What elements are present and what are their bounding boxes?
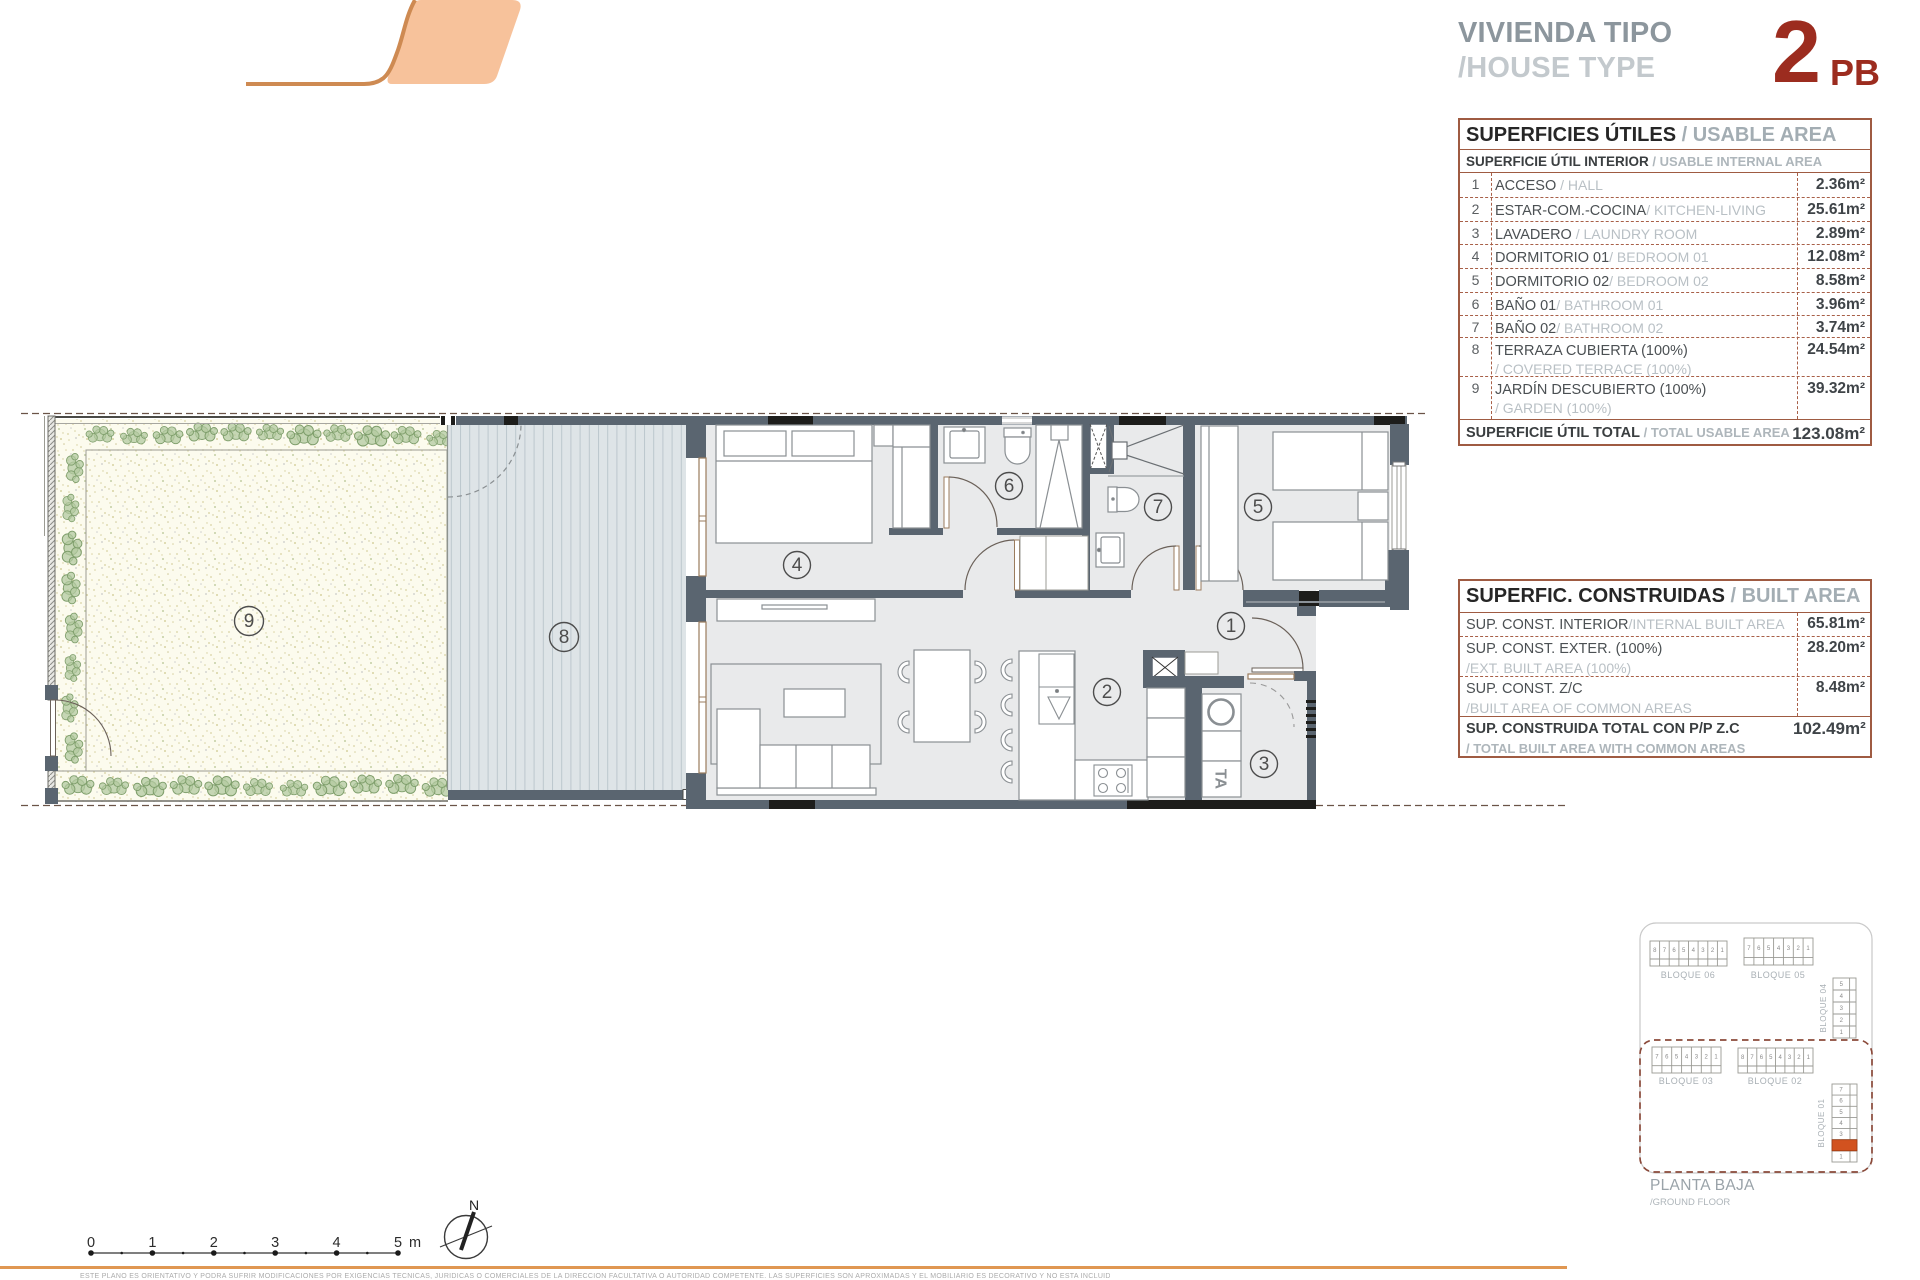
svg-text:m: m [409, 1235, 421, 1251]
svg-text:2: 2 [1102, 682, 1113, 703]
svg-text:1: 1 [1226, 616, 1237, 637]
svg-text:6: 6 [1004, 476, 1015, 497]
svg-text:1: 1 [148, 1235, 156, 1251]
svg-text:0: 0 [87, 1235, 95, 1251]
svg-text:/GROUND FLOOR: /GROUND FLOOR [1650, 1197, 1730, 1208]
svg-text:N: N [469, 1197, 479, 1213]
svg-text:4: 4 [333, 1235, 341, 1251]
svg-text:TA: TA [1212, 769, 1229, 790]
svg-text:4: 4 [792, 555, 803, 576]
svg-text:BLOQUE 04: BLOQUE 04 [1819, 983, 1828, 1032]
svg-text:PLANTA BAJA: PLANTA BAJA [1650, 1177, 1755, 1194]
svg-text:9: 9 [244, 611, 255, 632]
svg-text:3: 3 [271, 1235, 279, 1251]
svg-text:BLOQUE 02: BLOQUE 02 [1748, 1076, 1803, 1086]
svg-text:BLOQUE 05: BLOQUE 05 [1751, 970, 1806, 980]
svg-text:BLOQUE 03: BLOQUE 03 [1659, 1076, 1714, 1086]
svg-text:2: 2 [210, 1235, 218, 1251]
svg-text:5: 5 [394, 1235, 402, 1251]
svg-text:5: 5 [1253, 497, 1264, 518]
svg-text:BLOQUE 01: BLOQUE 01 [1817, 1098, 1826, 1147]
svg-text:3: 3 [1259, 754, 1270, 775]
svg-text:BLOQUE 06: BLOQUE 06 [1661, 970, 1716, 980]
svg-text:7: 7 [1153, 497, 1164, 518]
svg-text:8: 8 [559, 627, 570, 648]
